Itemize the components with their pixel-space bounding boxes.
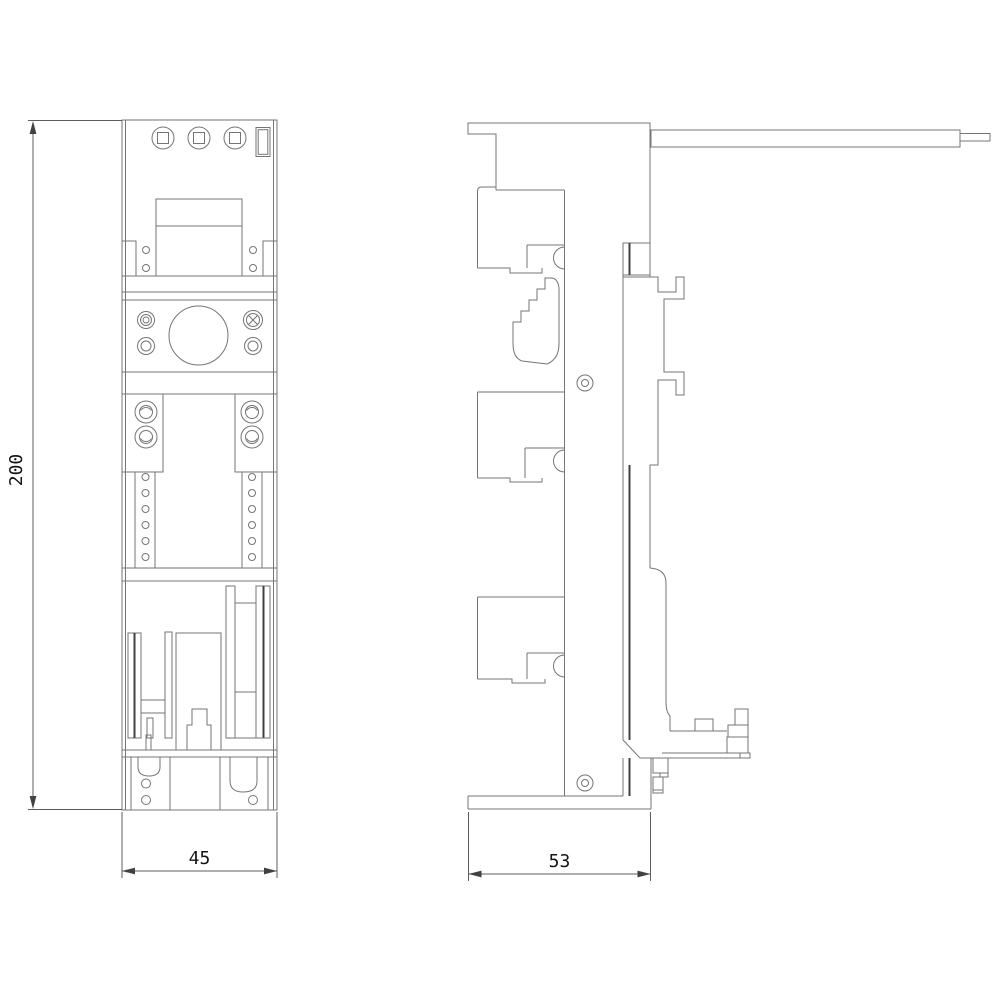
clamp-screw-slot <box>141 407 152 410</box>
bracket-stack <box>727 737 748 753</box>
terminal-screw-circle <box>188 127 210 149</box>
rail-hole <box>249 538 256 545</box>
release-bracket <box>623 709 750 793</box>
lower-mechanism <box>128 586 270 750</box>
rail-hole <box>249 554 256 561</box>
clip-spring-part <box>660 773 668 777</box>
top-terminal-screws <box>152 127 270 157</box>
terminal-screw-circle <box>224 127 246 149</box>
test-button-center <box>141 341 151 351</box>
rotary-knob <box>169 306 228 365</box>
clamp-screw-slot <box>247 407 258 410</box>
side-terminal-block-upper <box>478 187 565 273</box>
side-screw-lower <box>577 775 593 791</box>
width-dimension-label: 45 <box>189 848 211 869</box>
clamp-screw-slot <box>141 439 152 442</box>
mech-pedestal <box>187 709 211 750</box>
clip-spring-part <box>653 777 663 790</box>
depth-dimension-label: 53 <box>549 851 571 872</box>
small-hole <box>143 247 150 254</box>
rod-shaft <box>651 130 960 147</box>
din-clip-profile <box>623 277 684 568</box>
rail-hole <box>142 538 149 545</box>
label-plate <box>122 199 277 276</box>
bracket-stack <box>735 709 748 725</box>
reset-button <box>245 338 262 355</box>
block-arc <box>554 450 565 472</box>
clamp-block-left <box>122 394 163 472</box>
stepped-wedge <box>513 278 559 364</box>
side-terminal-block-middle <box>478 392 565 482</box>
mech-center-plate <box>176 633 221 750</box>
bracket-chamfer <box>623 740 740 758</box>
arrowhead-right <box>638 871 651 878</box>
small-hole <box>250 265 257 272</box>
terminal-screw-square <box>230 133 241 144</box>
arrowhead-up <box>30 121 37 134</box>
rail-hole <box>249 522 256 529</box>
arrowhead-left <box>469 871 482 878</box>
actuator-rod <box>651 130 990 147</box>
side-terminal-block-lower <box>478 597 565 683</box>
din-rail-mount <box>623 243 684 740</box>
clamp-screw <box>241 426 263 448</box>
dimension-width: 45 <box>122 812 277 878</box>
arrowhead-right <box>264 868 277 875</box>
bracket-stack <box>728 725 748 737</box>
technical-drawing-canvas: 200 45 53 <box>0 0 1000 1000</box>
block-arc <box>554 655 565 677</box>
clamp-screw <box>241 401 263 423</box>
side-notch-right <box>263 241 277 276</box>
din-lower-shoulder <box>650 568 670 731</box>
rod-tip <box>960 134 990 142</box>
mech-frame-right <box>235 603 256 692</box>
side-base <box>468 758 651 809</box>
clamp-screw-slot <box>247 439 258 442</box>
plunger-right <box>230 757 257 792</box>
block-arc <box>554 247 565 269</box>
rail-hole <box>142 554 149 561</box>
adjust-screw-ring <box>141 315 152 326</box>
mech-bar-right-a <box>226 586 235 738</box>
bracket-foot <box>740 753 750 758</box>
clamp-terminal-blocks <box>122 394 277 472</box>
block-step <box>478 679 546 683</box>
small-hole <box>143 265 150 272</box>
control-section <box>138 306 263 365</box>
side-screw-upper-center <box>582 380 589 387</box>
arrowhead-down <box>30 796 37 809</box>
arrowhead-left <box>122 868 135 875</box>
test-button <box>138 338 155 355</box>
dimension-depth: 53 <box>469 812 651 881</box>
plunger-left <box>138 757 160 776</box>
side-notch-left <box>122 241 136 276</box>
reset-button-center <box>248 341 258 351</box>
adjust-screw-center <box>143 317 149 323</box>
side-view <box>468 123 990 809</box>
perforated-rails <box>135 472 262 568</box>
foot-hole <box>249 796 258 805</box>
bracket-tab <box>695 719 713 731</box>
din-mount-block <box>623 243 650 275</box>
mech-bar-middle <box>165 632 172 738</box>
front-view <box>122 120 277 810</box>
foot-hole <box>142 779 151 788</box>
dimension-height: 200 <box>6 121 122 810</box>
front-body-outline <box>122 120 277 810</box>
rail-hole <box>249 506 256 513</box>
terminal-screw-square <box>158 133 169 144</box>
rail-hole <box>142 474 149 481</box>
small-hole <box>250 247 257 254</box>
block-outline <box>478 187 497 268</box>
clamp-screw <box>135 401 157 423</box>
side-screw-upper <box>577 375 593 391</box>
mounting-feet <box>131 757 268 810</box>
clip-spring-part <box>653 758 668 773</box>
terminal-screw-square <box>194 133 205 144</box>
foot-hole <box>142 796 151 805</box>
rail-hole <box>249 474 256 481</box>
side-screw-lower-center <box>582 780 589 787</box>
rail-hole <box>142 490 149 497</box>
rail-hole <box>142 506 149 513</box>
clamp-screw <box>135 426 157 448</box>
height-dimension-label: 200 <box>6 454 27 487</box>
rail-hole <box>249 490 256 497</box>
indicator-window-inner <box>258 130 268 155</box>
label-plate-outline <box>156 199 242 276</box>
clip-spring-part <box>653 790 663 793</box>
block-step <box>478 478 543 482</box>
block-step <box>478 268 543 273</box>
rail-hole <box>142 522 149 529</box>
cross-screw-x <box>248 315 257 324</box>
terminal-screw-circle <box>152 127 174 149</box>
